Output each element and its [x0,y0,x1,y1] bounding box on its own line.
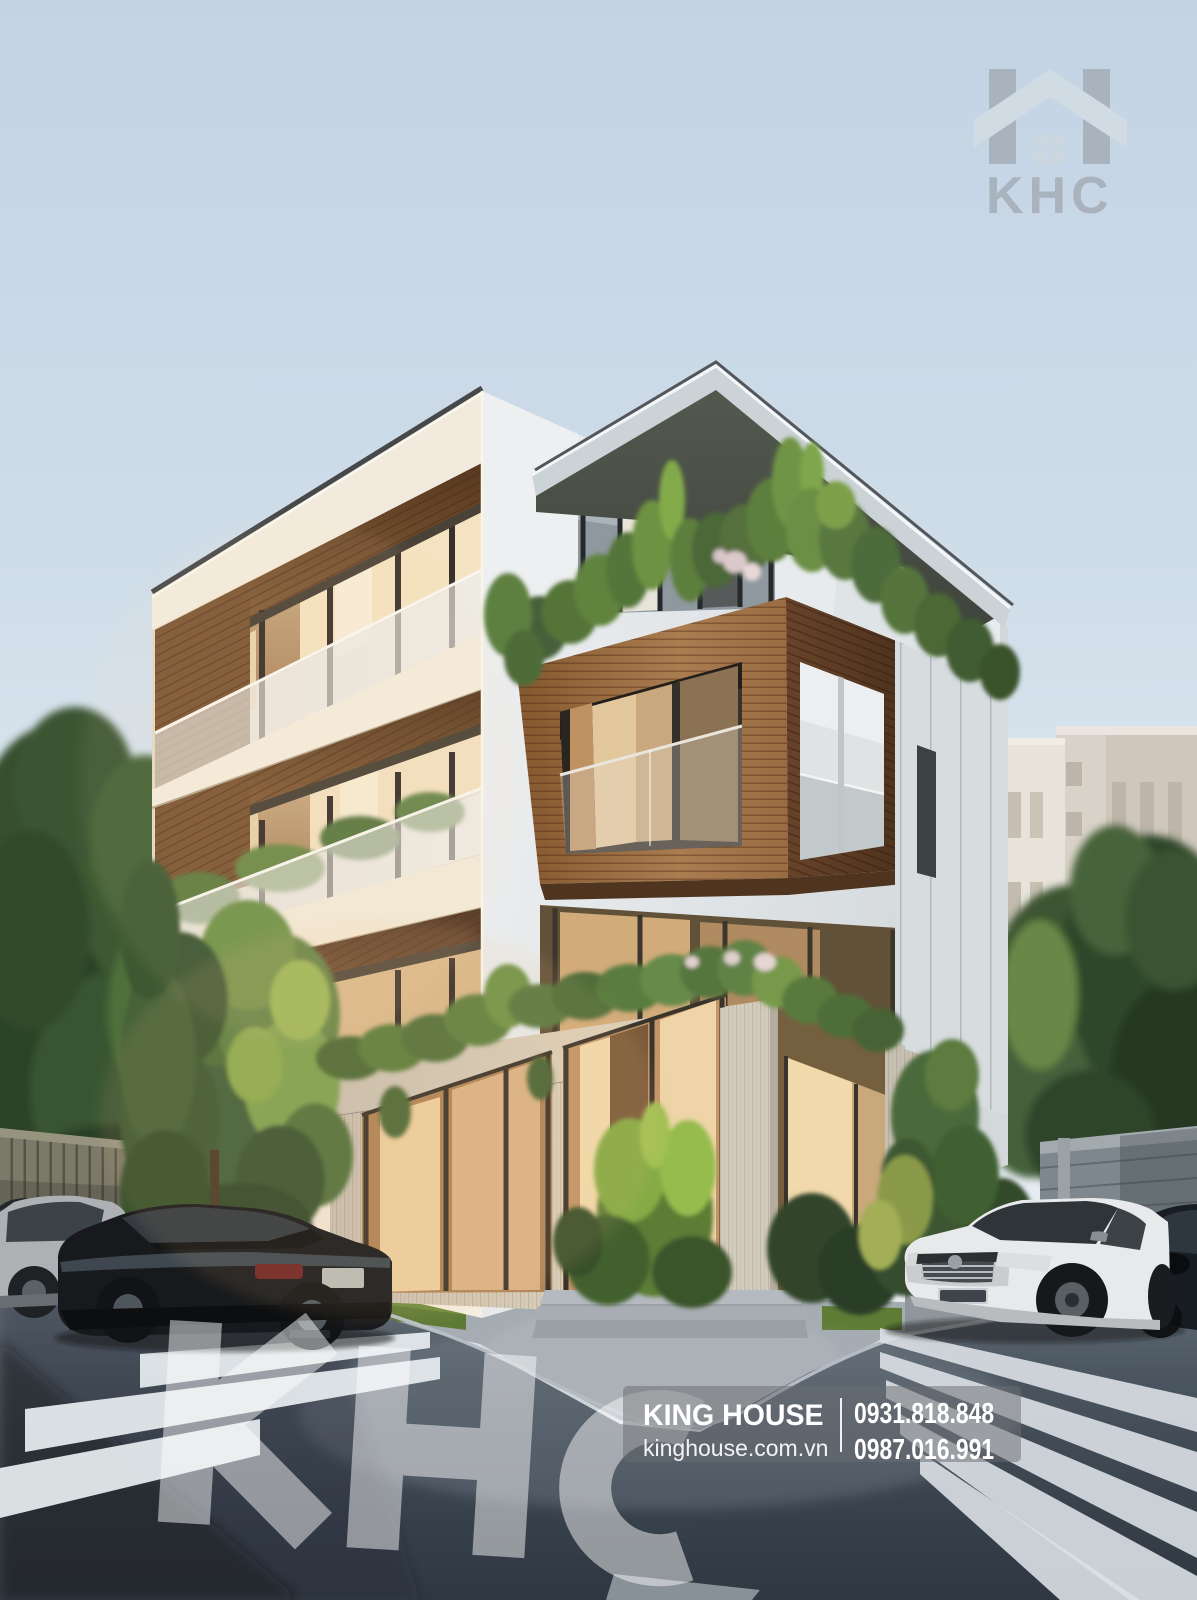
svg-text:0931.818.848: 0931.818.848 [854,1396,994,1429]
svg-text:KING HOUSE: KING HOUSE [643,1399,823,1432]
svg-text:0987.016.991: 0987.016.991 [854,1432,994,1465]
svg-text:kinghouse.com.vn: kinghouse.com.vn [643,1435,828,1461]
svg-text:KHC: KHC [986,167,1114,225]
